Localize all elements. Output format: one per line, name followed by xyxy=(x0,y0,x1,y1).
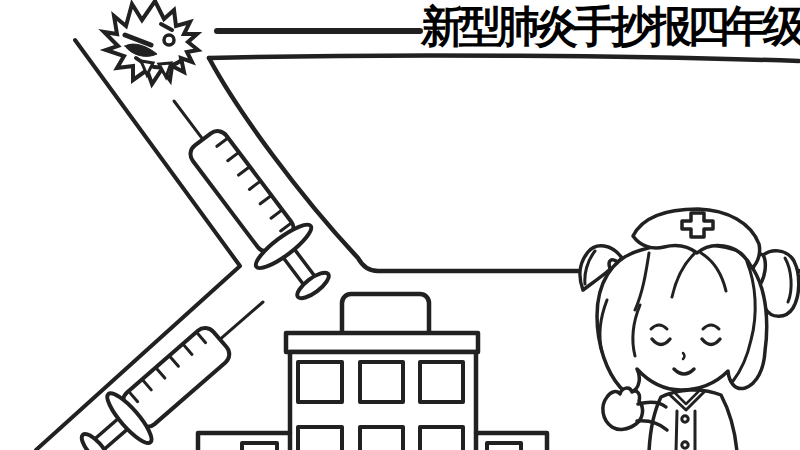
poster-canvas: 新型肺炎手抄报四年级 xyxy=(0,0,800,450)
page-title: 新型肺炎手抄报四年级 xyxy=(421,1,800,53)
hospital-roof-band xyxy=(286,333,478,352)
button xyxy=(682,442,688,448)
hospital-right-wing-window xyxy=(487,443,521,450)
virus-icon xyxy=(104,1,198,84)
nurse-hand xyxy=(603,388,643,429)
hospital-icon xyxy=(198,294,547,450)
needle-icon xyxy=(174,101,203,139)
nurse-icon xyxy=(580,209,799,450)
nurse-body xyxy=(649,390,737,450)
button xyxy=(682,416,688,422)
syringe-lower-icon xyxy=(68,278,284,450)
line-art-illustration xyxy=(0,0,800,450)
needle-icon xyxy=(220,302,263,339)
nose xyxy=(683,353,685,359)
hospital-left-wing-window xyxy=(242,443,277,450)
virus-eye-right xyxy=(164,35,174,45)
